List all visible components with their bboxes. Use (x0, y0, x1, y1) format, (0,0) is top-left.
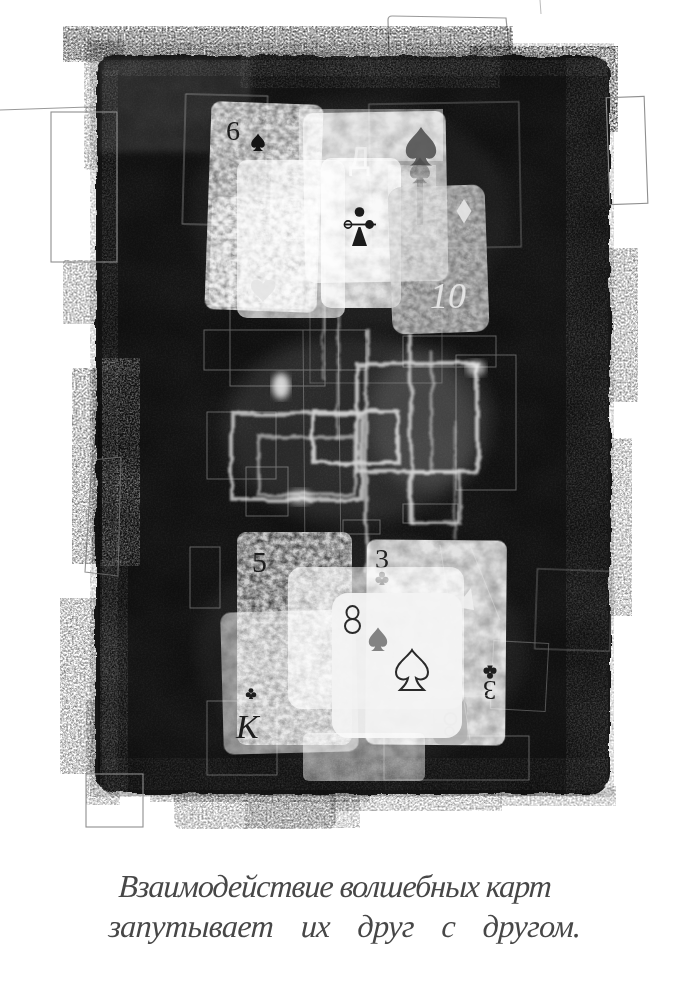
svg-text:Взаимодействие волшебных карт: Взаимодействие волшебных карт (118, 868, 552, 904)
svg-text:6: 6 (226, 115, 240, 146)
svg-text:К: К (235, 708, 261, 745)
svg-text:5: 5 (252, 545, 267, 578)
svg-text:запутывает их друг с другом.: запутывает их друг с другом. (107, 908, 582, 944)
svg-text:10: 10 (430, 276, 466, 316)
svg-text:3: 3 (483, 675, 497, 705)
